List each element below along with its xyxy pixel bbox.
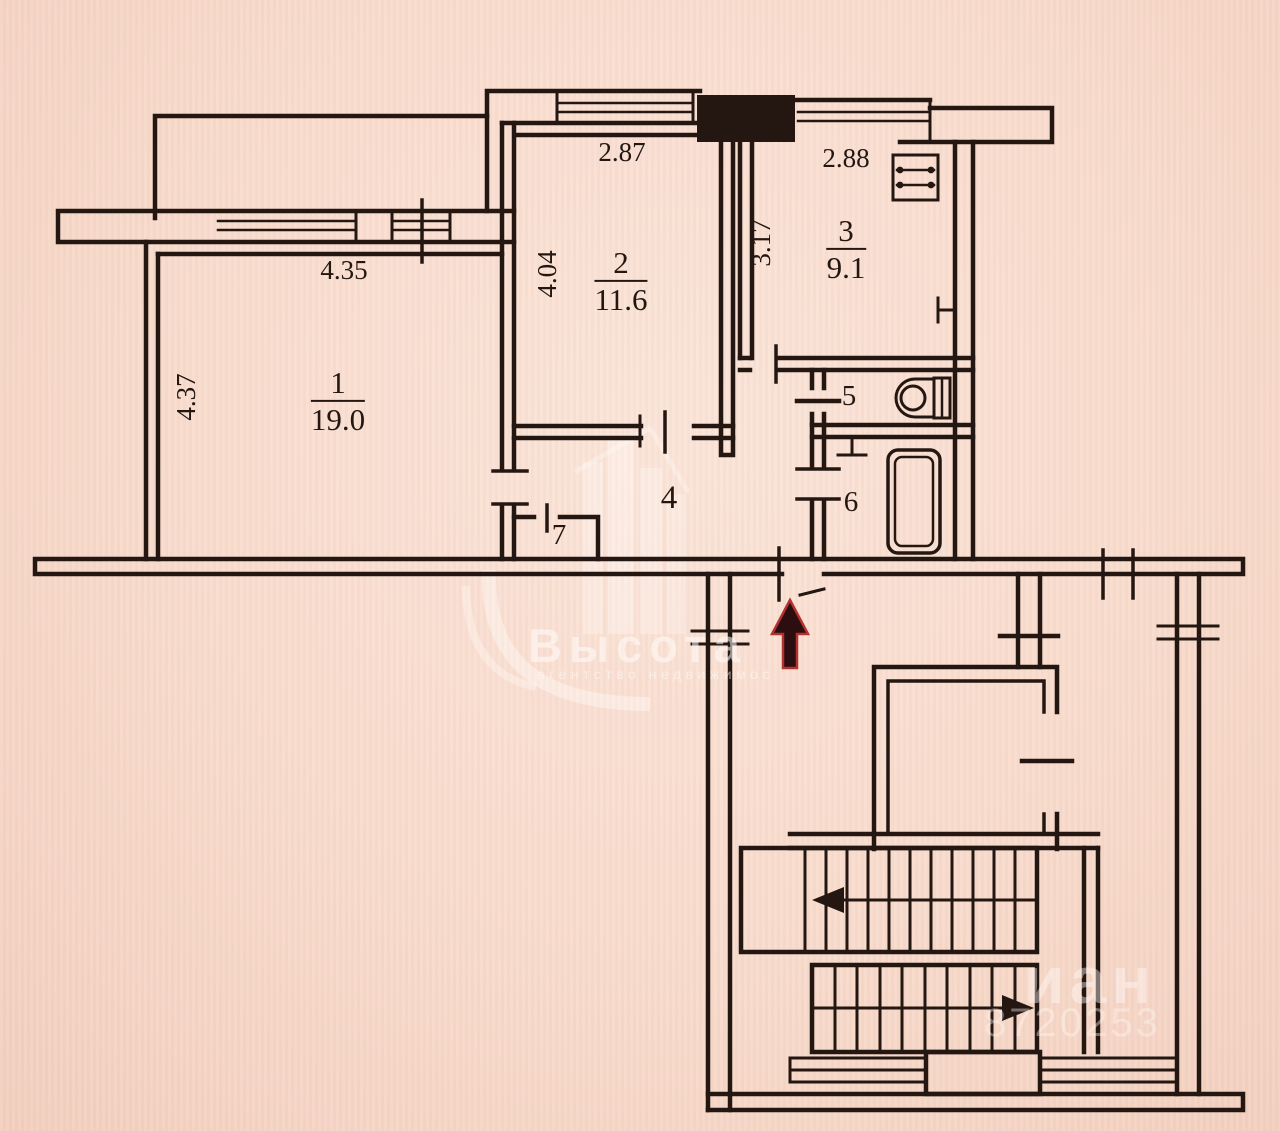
toilet-icon [896,378,950,418]
room-1-label: 1 19.0 [311,367,365,435]
stove-icon [893,155,938,200]
room-area: 11.6 [594,282,647,316]
door-leaf [800,589,824,595]
dim-room1-height: 4.37 [173,373,201,420]
rooms-5-6-walls [797,370,973,559]
room-4-label: 4 [661,482,678,516]
bathtub-icon [888,450,940,553]
room-3-label: 3 9.1 [826,215,866,283]
dim-room2-height: 4.04 [534,250,562,297]
floor-plan: 1 19.0 2 11.6 3 9.1 4 5 6 7 4.35 4.37 2.… [0,0,1280,1131]
dim-room3-width: 2.88 [822,145,869,173]
door-opening [797,469,839,499]
agency-watermark-tagline: агентство недвижимос [537,666,774,682]
window-symbol [1040,1058,1177,1082]
room-1-walls [146,123,527,559]
room-number: 1 [311,367,365,402]
stairs-upper-flight [741,848,1037,952]
window-symbol [790,1058,926,1082]
room-6-label: 6 [844,488,859,518]
room-area: 19.0 [311,402,365,436]
listing-id-watermark: 8720253 [984,1001,1161,1046]
room-number: 2 [594,247,647,282]
sink-icon [838,439,866,455]
building-icon [575,428,688,634]
dim-room1-width: 4.35 [320,257,367,285]
balcony [155,116,487,218]
door-opening [493,471,527,504]
elevator-shaft [874,667,1072,849]
room-area: 9.1 [826,250,866,284]
dim-room2-width: 2.87 [598,139,645,167]
room-2-label: 2 11.6 [594,247,647,315]
window-symbol [798,112,928,121]
apartment-bottom-wall [35,548,1243,600]
dim-room3-height: 3.17 [748,219,776,266]
landing-windows [790,1052,1177,1094]
entrance-arrow-icon [772,600,808,668]
window-symbol [218,221,450,230]
window-symbol [1158,626,1218,639]
room-number: 3 [826,215,866,250]
heater-icon [938,298,955,322]
room-5-label: 5 [842,382,857,412]
room-7-label: 7 [552,521,567,551]
direction-arrow-icon [812,887,844,913]
window-symbol [557,103,693,112]
agency-watermark-title: Высота [528,618,747,673]
